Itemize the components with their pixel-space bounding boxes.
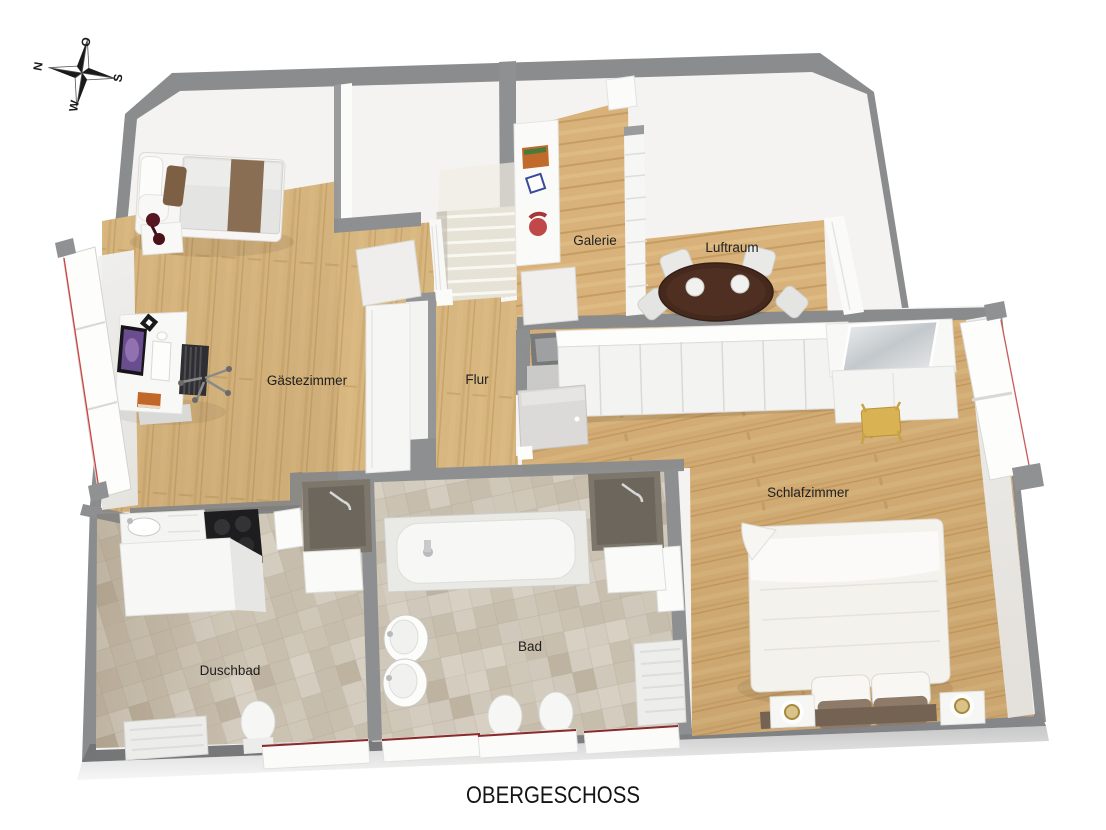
svg-text:O: O: [78, 36, 93, 48]
svg-text:Bad: Bad: [518, 639, 542, 654]
svg-text:Luftraum: Luftraum: [705, 240, 758, 255]
svg-text:OBERGESCHOSS: OBERGESCHOSS: [466, 782, 640, 809]
svg-text:Galerie: Galerie: [573, 233, 617, 248]
svg-text:Duschbad: Duschbad: [200, 663, 261, 678]
svg-text:N: N: [30, 61, 45, 72]
svg-text:S: S: [110, 73, 125, 83]
svg-text:W: W: [66, 99, 82, 113]
svg-text:Schlafzimmer: Schlafzimmer: [767, 485, 849, 500]
svg-text:Flur: Flur: [465, 372, 489, 387]
svg-text:Gästezimmer: Gästezimmer: [267, 373, 348, 388]
